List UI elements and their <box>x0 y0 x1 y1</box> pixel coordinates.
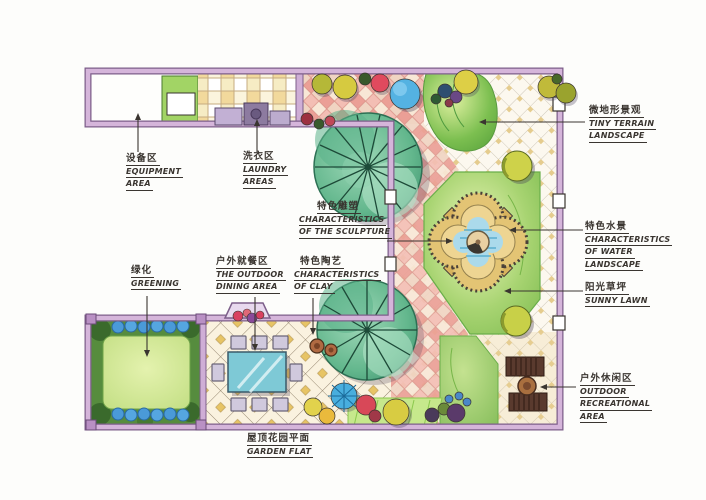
label-en-line: CHARACTERISTICS <box>294 271 381 281</box>
label-zh: 特色水景 <box>585 222 629 234</box>
divider-wall-greening <box>200 318 206 427</box>
label-zh: 屋顶花园平面 <box>247 434 312 446</box>
label-en-line: LAUNDRY <box>243 166 288 176</box>
label-en-line: AREA <box>126 180 153 190</box>
label-en-line: AREAS <box>243 178 276 188</box>
label-en-line: OF WATER <box>585 248 635 258</box>
label-laundry-areas: 洗衣区 LAUNDRY AREAS <box>243 152 288 191</box>
label-zh: 阳光草坪 <box>585 283 629 295</box>
label-en-line: OF CLAY <box>294 283 335 293</box>
label-outdoor-recreation: 户外休闲区 OUTDOOR RECREATIONAL AREA <box>580 374 652 425</box>
label-greening: 绿化 GREENING <box>131 266 181 292</box>
label-en-line: TINY TERRAIN <box>589 120 656 130</box>
label-equipment-area: 设备区 EQUIPMENT AREA <box>126 154 183 193</box>
label-zh: 户外就餐区 <box>216 257 271 269</box>
label-zh: 微地形景观 <box>589 106 644 118</box>
label-en-line: RECREATIONAL <box>580 400 652 410</box>
label-zh: 特色陶艺 <box>300 257 344 269</box>
bench-top <box>506 357 544 376</box>
label-tiny-terrain: 微地形景观 TINY TERRAIN LANDSCAPE <box>589 106 656 145</box>
label-zh: 特色雕塑 <box>317 202 361 214</box>
label-sunny-lawn: 阳光草坪 SUNNY LAWN <box>585 283 650 309</box>
label-zh: 洗衣区 <box>243 152 277 164</box>
label-en-line: CHARACTERISTICS <box>585 236 672 246</box>
label-en-line: SUNNY LAWN <box>585 297 650 307</box>
fountain-sculpture <box>467 231 489 254</box>
label-en-line: CHARACTERISTICS <box>299 216 386 226</box>
label-en-line: OUTDOOR <box>580 388 629 398</box>
label-garden-flat-title: 屋顶花园平面 GARDEN FLAT <box>247 434 313 460</box>
label-en-line: EQUIPMENT <box>126 168 183 178</box>
greening-bed <box>89 315 202 429</box>
laundry-room-counter <box>167 93 195 115</box>
label-en-line: AREA <box>580 413 607 423</box>
label-en-line: LANDSCAPE <box>585 261 643 271</box>
label-en-line: DINING AREA <box>216 283 280 293</box>
equipment-room-floor <box>91 74 162 124</box>
label-en-line: GARDEN FLAT <box>247 448 313 458</box>
label-zh: 户外休闲区 <box>580 374 635 386</box>
label-en-line: THE OUTDOOR <box>216 271 286 281</box>
label-outdoor-dining: 户外就餐区 THE OUTDOOR DINING AREA <box>216 257 286 296</box>
label-en-line: GREENING <box>131 280 181 290</box>
garden-plan-page: 设备区 EQUIPMENT AREA 洗衣区 LAUNDRY AREAS 特色雕… <box>0 0 706 500</box>
label-water-landscape: 特色水景 CHARACTERISTICS OF WATER LANDSCAPE <box>585 222 672 273</box>
label-zh: 绿化 <box>131 266 154 278</box>
label-sculpture: 特色雕塑 CHARACTERISTICS OF THE SCULPTURE <box>299 202 392 241</box>
label-clay: 特色陶艺 CHARACTERISTICS OF CLAY <box>294 257 381 296</box>
label-en-line: LANDSCAPE <box>589 132 647 142</box>
label-en-line: OF THE SCULPTURE <box>299 228 392 238</box>
label-zh: 设备区 <box>126 154 160 166</box>
bench-bottom <box>509 393 547 411</box>
